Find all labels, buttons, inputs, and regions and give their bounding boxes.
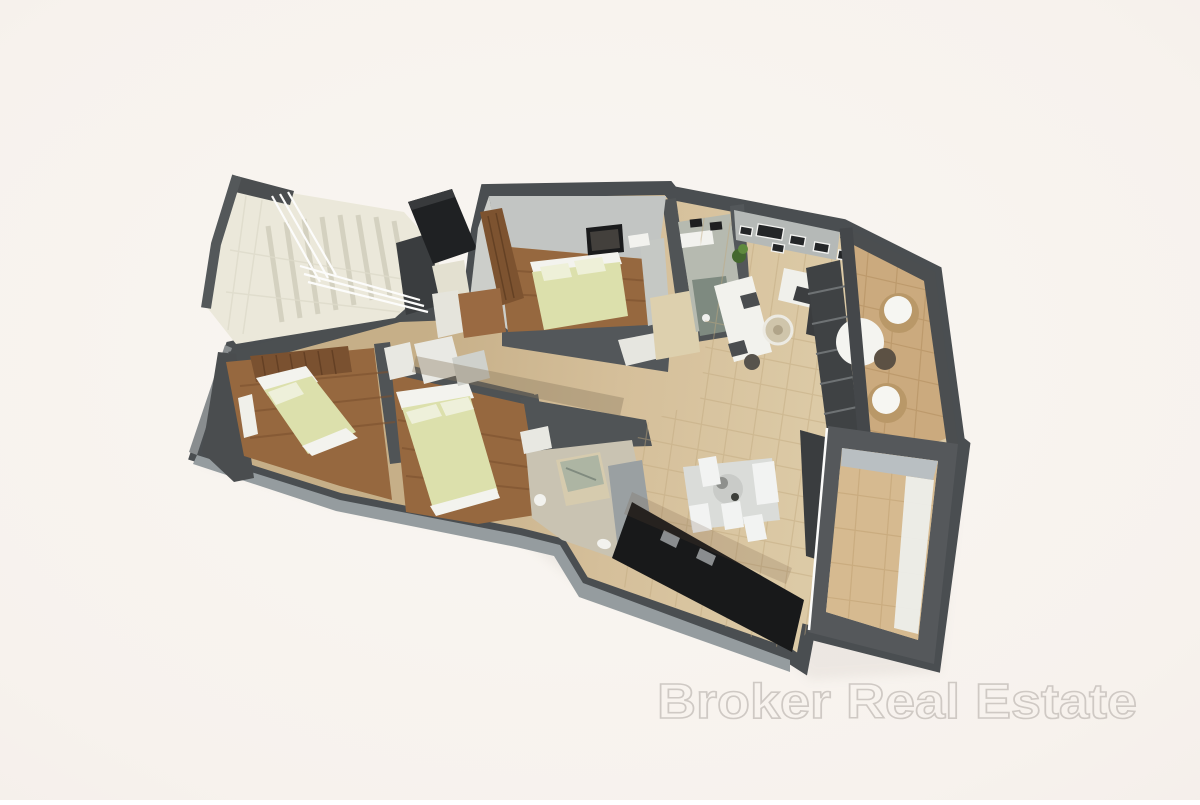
- svg-text:Broker Real Estate: Broker Real Estate: [657, 675, 1137, 729]
